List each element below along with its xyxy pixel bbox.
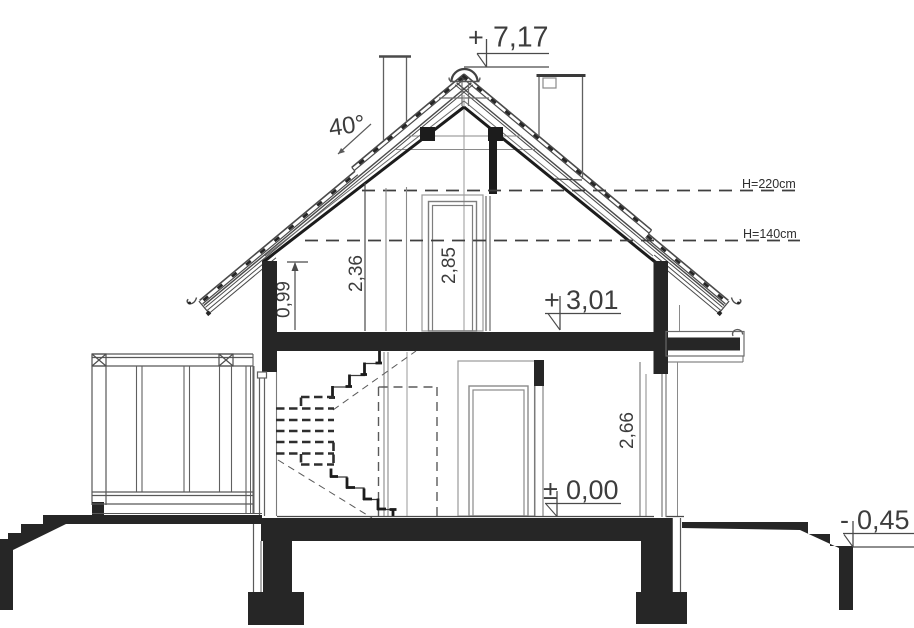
svg-text:+: + [468,23,484,53]
svg-text:2,66: 2,66 [617,412,638,449]
svg-text:7,17: 7,17 [493,22,548,54]
svg-text:H=220cm: H=220cm [742,177,796,191]
svg-text:40°: 40° [327,110,367,142]
svg-text:+: + [544,285,560,315]
svg-text:-: - [840,505,849,535]
svg-text:2,85: 2,85 [439,247,460,284]
svg-text:H=140cm: H=140cm [743,227,797,241]
svg-text:0,45: 0,45 [857,505,910,535]
svg-text:±: ± [543,475,558,505]
svg-text:0,00: 0,00 [566,475,619,505]
svg-text:2,36: 2,36 [346,255,367,292]
svg-text:3,01: 3,01 [566,285,619,315]
